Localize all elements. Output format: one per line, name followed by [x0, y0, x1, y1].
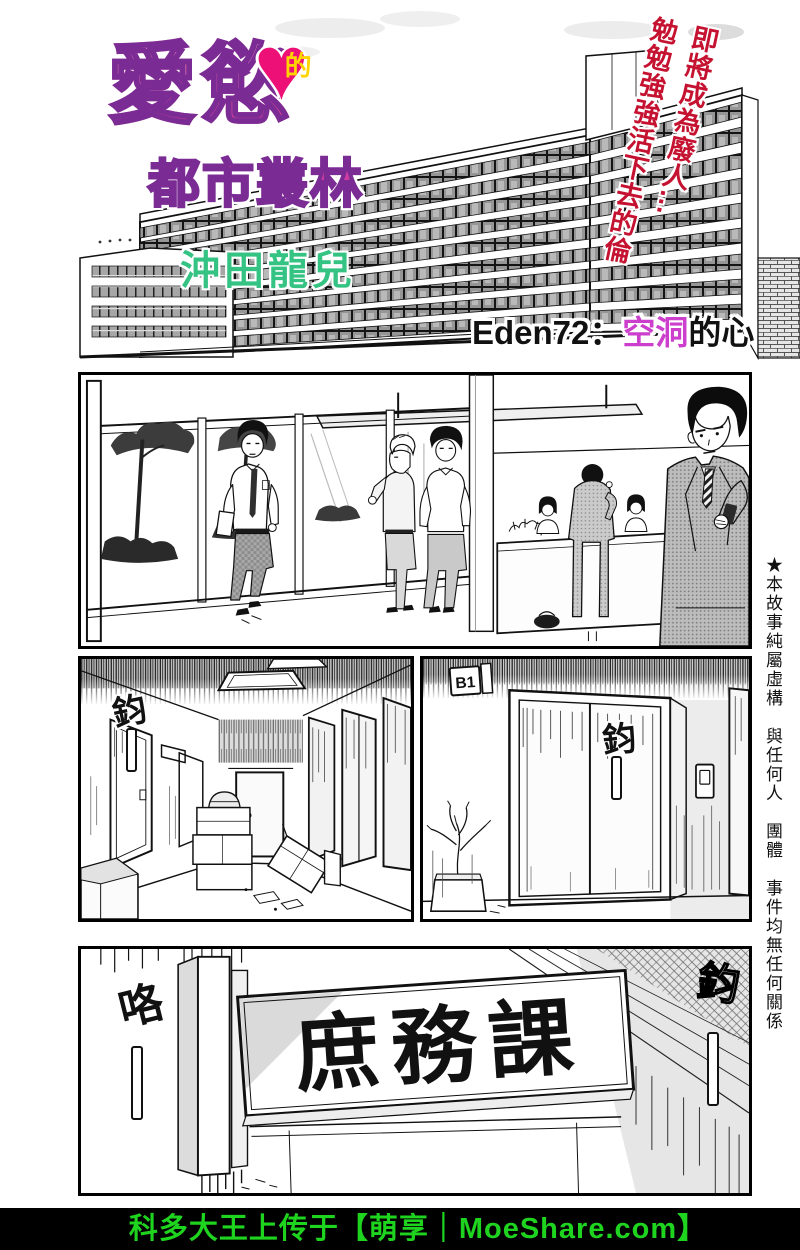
panel-elevator: B1 — [420, 656, 752, 922]
author-name: 沖田龍兒 — [180, 238, 356, 296]
sfx-corridor-dash — [126, 728, 137, 772]
panel-lobby — [78, 372, 752, 649]
episode-title: Eden72：空洞的心 — [472, 306, 754, 354]
trash-bin — [325, 851, 341, 886]
sfx-door-left-dash — [131, 1046, 143, 1120]
sfx-elevator: 鈞 — [600, 710, 639, 762]
sfx-door-right-dash — [707, 1032, 719, 1106]
department-sign: 庶務課 — [234, 970, 635, 1125]
foreground-cabinet — [81, 858, 138, 919]
episode-prefix: Eden72： — [472, 314, 622, 351]
footer-bar: 科多大王上传于【萌享｜MoeShare.com】 — [0, 1208, 800, 1250]
series-subtitle: 都市叢林 — [148, 142, 364, 217]
disclaimer-note: ★本故事純屬虛構 與任何人 團體 事件均無任何關係 — [760, 556, 785, 1076]
sfx-elevator-dash — [611, 756, 622, 800]
manga-page: 愛慾 ♥ 的 都市叢林 沖田龍兒 即將成為廢人… 勉勉強強活下去的倫 Eden7… — [0, 0, 800, 1250]
side-building-right — [758, 258, 800, 358]
floor-sign-label: B1 — [455, 674, 476, 692]
heart-particle: 的 — [285, 45, 312, 84]
episode-suffix: 的心 — [688, 314, 754, 351]
floor-sign-b1: B1 — [449, 663, 492, 695]
call-button-plate — [696, 765, 714, 798]
corridor-right-doors — [309, 698, 411, 870]
lobby-pillar — [470, 375, 494, 631]
sfx-door-right: 鈞 — [694, 947, 744, 1013]
elevator-doors — [509, 690, 686, 905]
watermark-text: 科多大王上传于【萌享｜MoeShare.com】 — [0, 1208, 800, 1250]
second-elevator-edge — [729, 688, 749, 895]
heart-mark: ♥ 的 — [254, 22, 350, 118]
episode-highlight: 空洞 — [622, 314, 688, 351]
panel-door-sign: 庶務課 — [78, 946, 752, 1196]
